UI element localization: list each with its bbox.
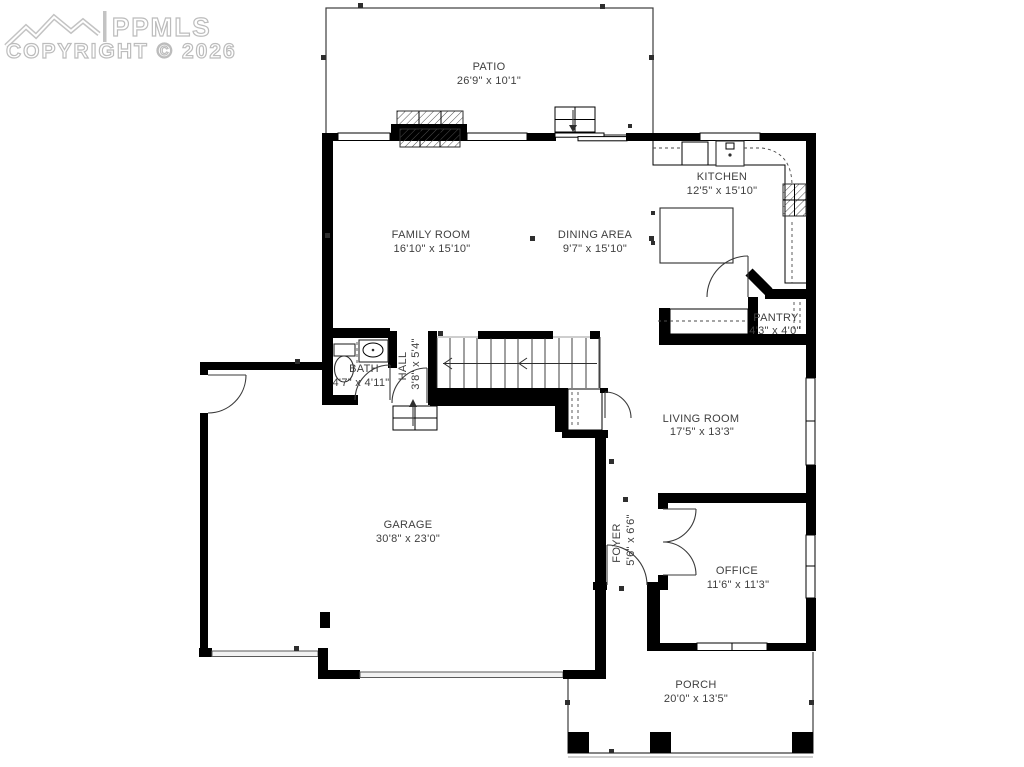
wall-segment [590,331,600,339]
living-room-label: LIVING ROOM [663,413,740,425]
wall-segment [527,133,556,141]
watermark: PPMLS COPYRIGHT © 2026 [6,11,237,63]
wall-segment [200,362,208,375]
dining-area-dims: 9'7" x 15'10" [563,243,627,255]
wall-segment [200,362,323,370]
up-arrow-head-icon [409,399,417,407]
wall-segment [660,643,697,651]
wall-segment [806,345,816,378]
living-room-wall [806,345,816,493]
garage-door [360,672,563,678]
garage-door [212,651,318,657]
wall-segment [388,331,397,368]
wall-segment [595,438,606,679]
patio-steps [555,107,595,132]
bath-label: BATH [349,363,379,375]
hall-label: HALL [397,352,409,381]
wall-segment [328,670,360,679]
drain-icon [372,349,375,352]
porch-pillar [650,732,671,753]
top-wall [323,133,816,141]
fireplace-hearth [400,129,460,147]
wall-segment [647,590,660,651]
kitchen-island [660,208,733,263]
fireplace-chase [397,111,463,126]
wall-segment [322,395,358,405]
living-room-dims: 17'5" x 13'3" [670,426,734,438]
dining-area-label: DINING AREA [558,229,633,241]
pantry-label: PANTRY [753,312,799,324]
bath-dims: 4'7" x 4'11" [333,377,390,389]
kitchen-window [700,133,760,141]
fireplace [391,111,467,147]
porch-pillar [792,732,813,753]
floor-plan-svg: PPMLS COPYRIGHT © 2026 [0,0,1024,767]
wall-segment [478,331,553,339]
window [467,133,527,141]
garage-column [320,612,330,628]
garage-dims: 30'8" x 23'0" [376,533,440,545]
wall-segment [562,430,608,438]
wall-segment [765,289,806,299]
coat-closet [555,388,631,438]
porch-label: PORCH [675,679,716,691]
wall-segment [593,582,607,590]
pantry-dims: 4'3" x 4'0" [749,325,800,337]
drain-icon [728,153,731,156]
wall-segment [318,648,328,679]
door-swing [605,392,631,418]
office-dims: 11'6" x 11'3" [707,579,770,591]
wall-segment [555,388,568,432]
wall-segment [626,133,700,141]
wall-segment [658,575,668,590]
wall-segment [806,141,816,347]
window [338,133,390,141]
wall-segment [658,493,816,503]
door-swing [663,542,696,575]
office-label: OFFICE [716,565,758,577]
stairs [430,331,600,406]
wall-segment [322,328,390,338]
wall-segment [806,465,816,493]
family-room-dims: 16'10" x 15'10" [393,243,470,255]
porch-dims: 20'0" x 13'5" [664,693,728,705]
wall-segment [199,648,212,657]
wall-segment [430,388,568,406]
family-room-label: FAMILY ROOM [392,229,471,241]
hall-dims: 3'8" x 5'4" [410,338,422,389]
garage-label: GARAGE [384,519,433,531]
watermark-copyright: COPYRIGHT © 2026 [6,40,237,63]
wall-segment [658,503,668,509]
wall-segment [200,413,208,650]
porch-pillar [568,732,589,753]
watermark-divider [103,11,107,42]
floor-plan: PPMLS COPYRIGHT © 2026 [0,0,1024,767]
kitchen-dims: 12'5" x 15'10" [687,185,758,197]
toilet-icon [334,344,355,356]
down-arrow-head-icon [569,125,577,132]
closet-box [568,389,602,430]
foyer-dims: 5'6" x 6'6" [625,514,637,565]
wall-segment [749,272,769,292]
sliding-door [578,137,627,141]
patio-label: PATIO [473,61,506,73]
dishwasher [682,142,708,165]
wall-segment [760,133,816,141]
door-swing [663,509,696,542]
stair-treads [437,337,600,388]
upper-cabinet-dash [762,148,792,186]
wall-segment [767,643,816,651]
kitchen-fixtures [653,141,806,283]
kitchen-label: KITCHEN [697,171,747,183]
wall-segment [806,493,816,535]
door-swing [208,375,246,413]
buffet-counter [670,309,748,334]
watermark-brand: PPMLS [112,12,212,42]
foyer-label: FOYER [611,523,623,562]
wall-segment [322,133,333,405]
patio-dims: 26'9" x 10'1" [457,75,521,87]
